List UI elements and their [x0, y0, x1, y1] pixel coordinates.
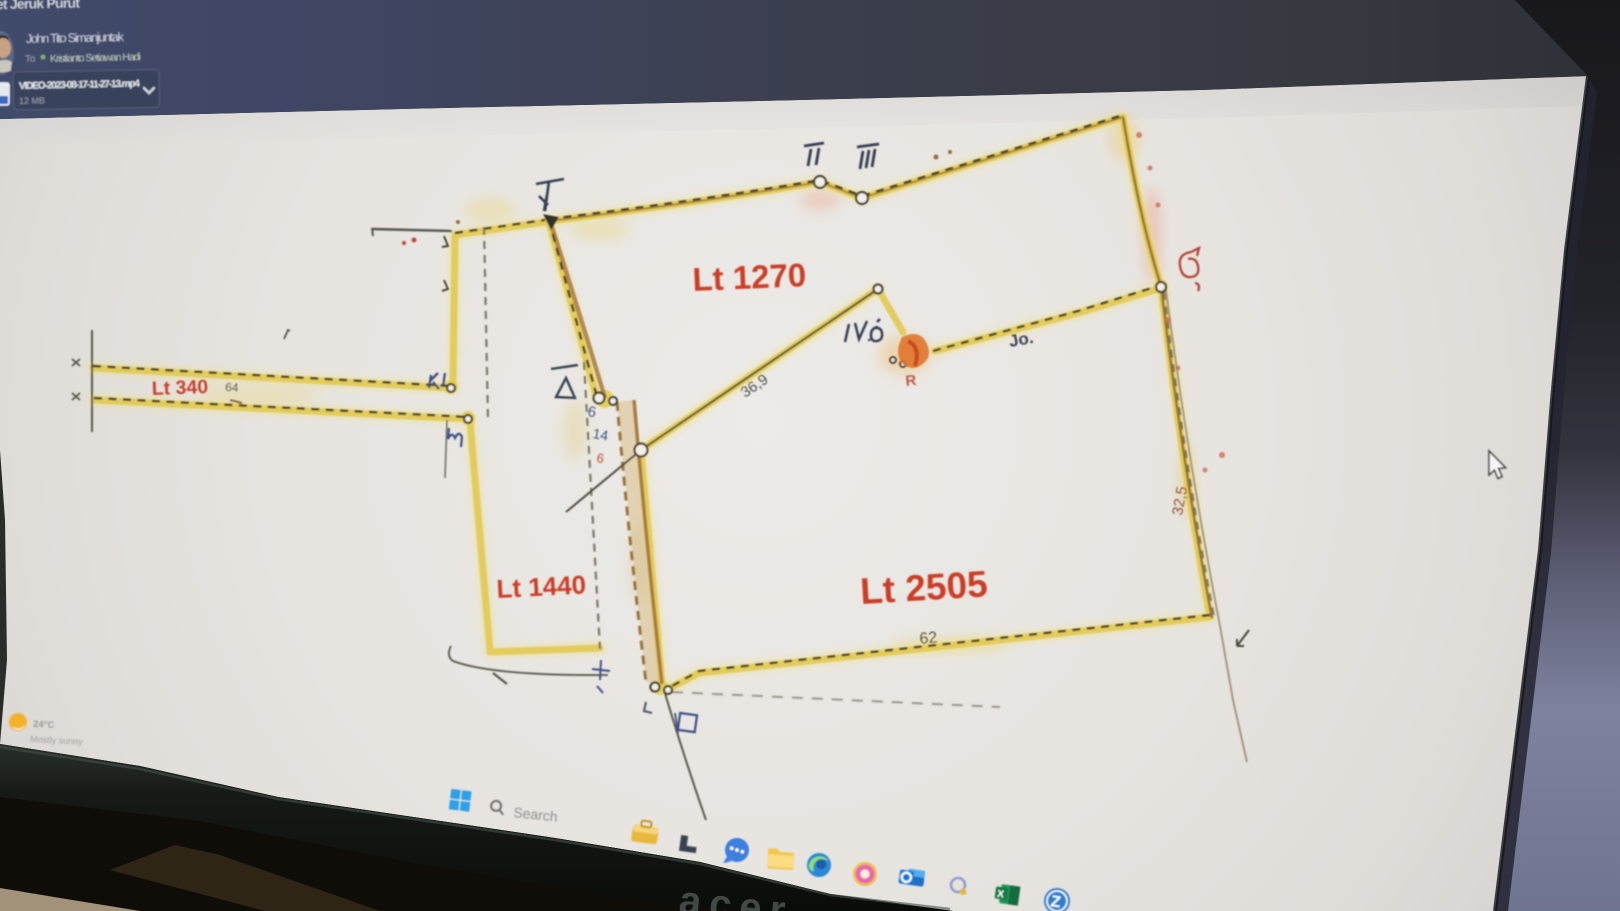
- svg-text:12 MB: 12 MB: [19, 95, 45, 106]
- svg-text:John Tito Simanjuntak: John Tito Simanjuntak: [26, 30, 125, 46]
- svg-text:Lt 1440: Lt 1440: [496, 569, 587, 604]
- svg-text:To: To: [25, 54, 36, 65]
- svg-text:et Jeruk Purut: et Jeruk Purut: [0, 0, 80, 12]
- svg-text:Lt 1270: Lt 1270: [692, 256, 807, 298]
- svg-text:64: 64: [225, 380, 239, 395]
- svg-text:14: 14: [591, 425, 609, 443]
- svg-text:Kristianto Setiawan Hadi: Kristianto Setiawan Hadi: [50, 51, 141, 65]
- svg-text:R: R: [905, 372, 918, 390]
- svg-text:24°C: 24°C: [33, 719, 55, 731]
- svg-text:Lt 340: Lt 340: [151, 376, 208, 400]
- svg-text:62: 62: [919, 629, 939, 648]
- svg-text:Lt 2505: Lt 2505: [859, 563, 989, 612]
